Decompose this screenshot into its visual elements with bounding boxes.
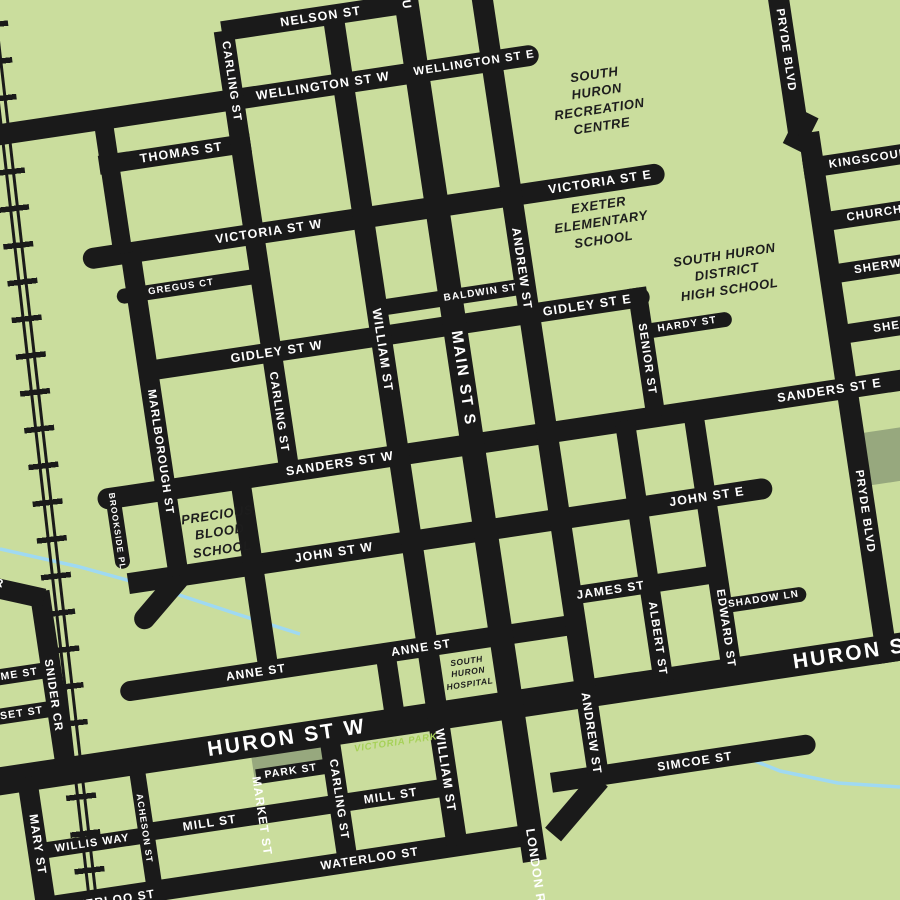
road-sanders-st bbox=[96, 365, 900, 510]
place-label-precious-blood-school: PRECIOUS BLOOD SCHOOL bbox=[180, 501, 260, 563]
road-edward-st bbox=[683, 409, 742, 673]
place-label-exeter-elementary-school: EXETER ELEMENTARY SCHOOL bbox=[551, 189, 652, 255]
road-albert-st bbox=[615, 419, 674, 683]
street-label-wellington-st-w-1: WELLINGTON ST W bbox=[255, 69, 391, 103]
street-label-london-rd-54: LONDON RD bbox=[523, 828, 549, 900]
map-viewport: NELSON STWELLINGTON ST WWELLINGTON ST ET… bbox=[0, 0, 900, 900]
rotated-map-plane: NELSON STWELLINGTON ST WWELLINGTON ST ET… bbox=[0, 0, 900, 900]
road-west-link bbox=[93, 117, 132, 254]
road-snider-entry bbox=[0, 567, 46, 608]
place-label-south-huron-district-high-school: SOUTH HURON DISTRICT HIGH SCHOOL bbox=[672, 239, 782, 306]
place-label-south-huron-hospital: SOUTH HURON HOSPITAL bbox=[442, 652, 494, 693]
place-label-south-huron-recreation-centre: SOUTH HURON RECREATION CENTRE bbox=[548, 59, 648, 141]
map-screenshot: { "map": { "title": "Exeter street map",… bbox=[0, 0, 900, 900]
